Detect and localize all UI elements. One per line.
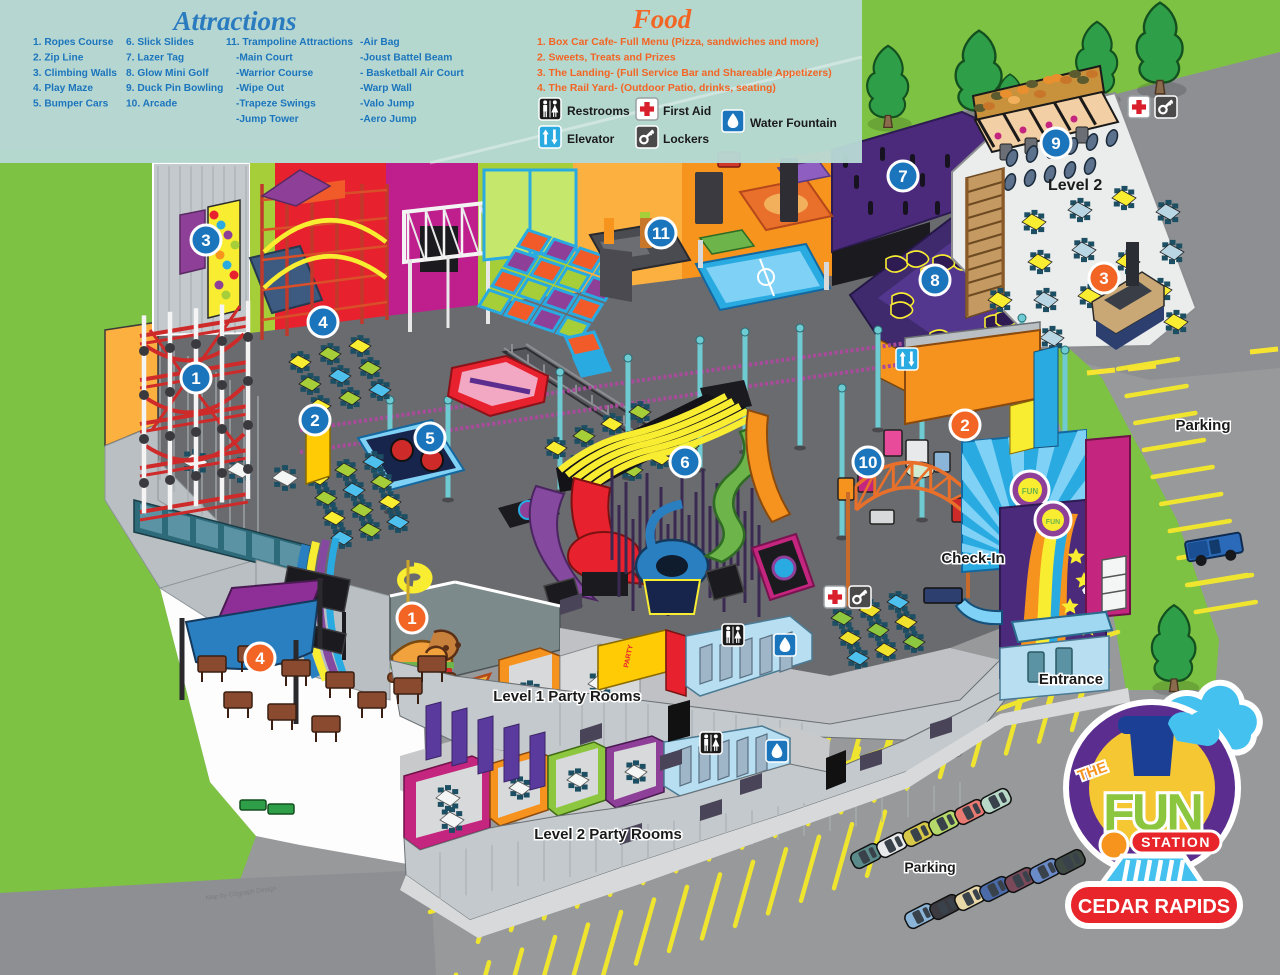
svg-text:6. Slick Slides: 6. Slick Slides (126, 37, 194, 48)
svg-text:1: 1 (191, 369, 200, 388)
svg-text:2: 2 (960, 416, 969, 435)
svg-text:2. Zip Line: 2. Zip Line (33, 52, 84, 63)
svg-text:Lockers: Lockers (663, 132, 709, 146)
svg-text:4. The Rail Yard- (Outdoor Pat: 4. The Rail Yard- (Outdoor Patio, drinks… (537, 83, 776, 94)
svg-text:-Joust Battel Beam: -Joust Battel Beam (360, 52, 452, 63)
svg-text:2. Sweets, Treats and Prizes: 2. Sweets, Treats and Prizes (537, 52, 676, 63)
svg-text:7. Lazer Tag: 7. Lazer Tag (126, 52, 184, 63)
svg-text:CEDAR RAPIDS: CEDAR RAPIDS (1078, 896, 1230, 918)
svg-text:4. Play Maze: 4. Play Maze (33, 83, 93, 94)
svg-text:Restrooms: Restrooms (567, 104, 630, 118)
svg-text:-Wipe Out: -Wipe Out (236, 83, 285, 94)
svg-text:3: 3 (201, 231, 210, 250)
svg-text:10: 10 (859, 453, 878, 472)
svg-text:FUN: FUN (1046, 519, 1060, 526)
svg-text:-Valo Jump: -Valo Jump (360, 99, 414, 110)
svg-text:1: 1 (407, 609, 416, 628)
svg-text:1. Ropes Course: 1. Ropes Course (33, 37, 114, 48)
svg-text:8: 8 (930, 271, 939, 290)
svg-text:Check-In: Check-In (941, 550, 1004, 567)
svg-text:8. Glow Mini Golf: 8. Glow Mini Golf (126, 68, 209, 79)
svg-text:Entrance: Entrance (1039, 671, 1103, 688)
svg-text:First Aid: First Aid (663, 104, 711, 118)
svg-text:6: 6 (680, 453, 689, 472)
svg-text:Level 2: Level 2 (1048, 177, 1102, 194)
svg-text:9. Duck Pin Bowling: 9. Duck Pin Bowling (126, 83, 223, 94)
svg-text:Elevator: Elevator (567, 132, 615, 146)
svg-text:-Air Bag: -Air Bag (360, 37, 400, 48)
svg-text:STATION: STATION (1141, 834, 1211, 850)
svg-text:10. Arcade: 10. Arcade (126, 99, 177, 110)
svg-text:- Basketball Air Court: - Basketball Air Court (360, 68, 464, 79)
svg-text:3. Climbing Walls: 3. Climbing Walls (33, 68, 117, 79)
svg-text:2: 2 (310, 411, 319, 430)
svg-text:4: 4 (318, 313, 328, 332)
svg-text:11: 11 (652, 224, 670, 243)
svg-text:FUN: FUN (1022, 487, 1039, 496)
svg-text:11. Trampoline Attractions: 11. Trampoline Attractions (226, 37, 353, 48)
svg-text:Food: Food (632, 4, 692, 34)
svg-text:7: 7 (898, 167, 907, 186)
svg-text:3. The Landing- (Full Service: 3. The Landing- (Full Service Bar and Sh… (537, 68, 832, 79)
svg-text:Attractions: Attractions (171, 6, 296, 36)
svg-text:-Main Court: -Main Court (236, 52, 293, 63)
svg-text:5: 5 (425, 429, 434, 448)
svg-text:-Jump Tower: -Jump Tower (236, 114, 299, 125)
svg-text:3: 3 (1099, 269, 1108, 288)
svg-text:Parking: Parking (904, 859, 955, 875)
svg-text:-Trapeze Swings: -Trapeze Swings (236, 99, 316, 110)
svg-text:9: 9 (1051, 134, 1060, 153)
svg-text:1. Box Car Cafe- Full Menu (Pi: 1. Box Car Cafe- Full Menu (Pizza, sandw… (537, 37, 819, 48)
svg-text:-Warrior Course: -Warrior Course (236, 68, 314, 79)
svg-text:4: 4 (255, 649, 265, 668)
svg-text:5. Bumper Cars: 5. Bumper Cars (33, 99, 109, 110)
svg-text:Water Fountain: Water Fountain (750, 116, 837, 130)
svg-text:-Aero Jump: -Aero Jump (360, 114, 417, 125)
svg-text:Level 2 Party Rooms: Level 2 Party Rooms (534, 826, 682, 843)
svg-text:Parking: Parking (1175, 417, 1230, 434)
svg-text:-Warp Wall: -Warp Wall (360, 83, 412, 94)
svg-text:Level 1 Party Rooms: Level 1 Party Rooms (493, 688, 641, 705)
